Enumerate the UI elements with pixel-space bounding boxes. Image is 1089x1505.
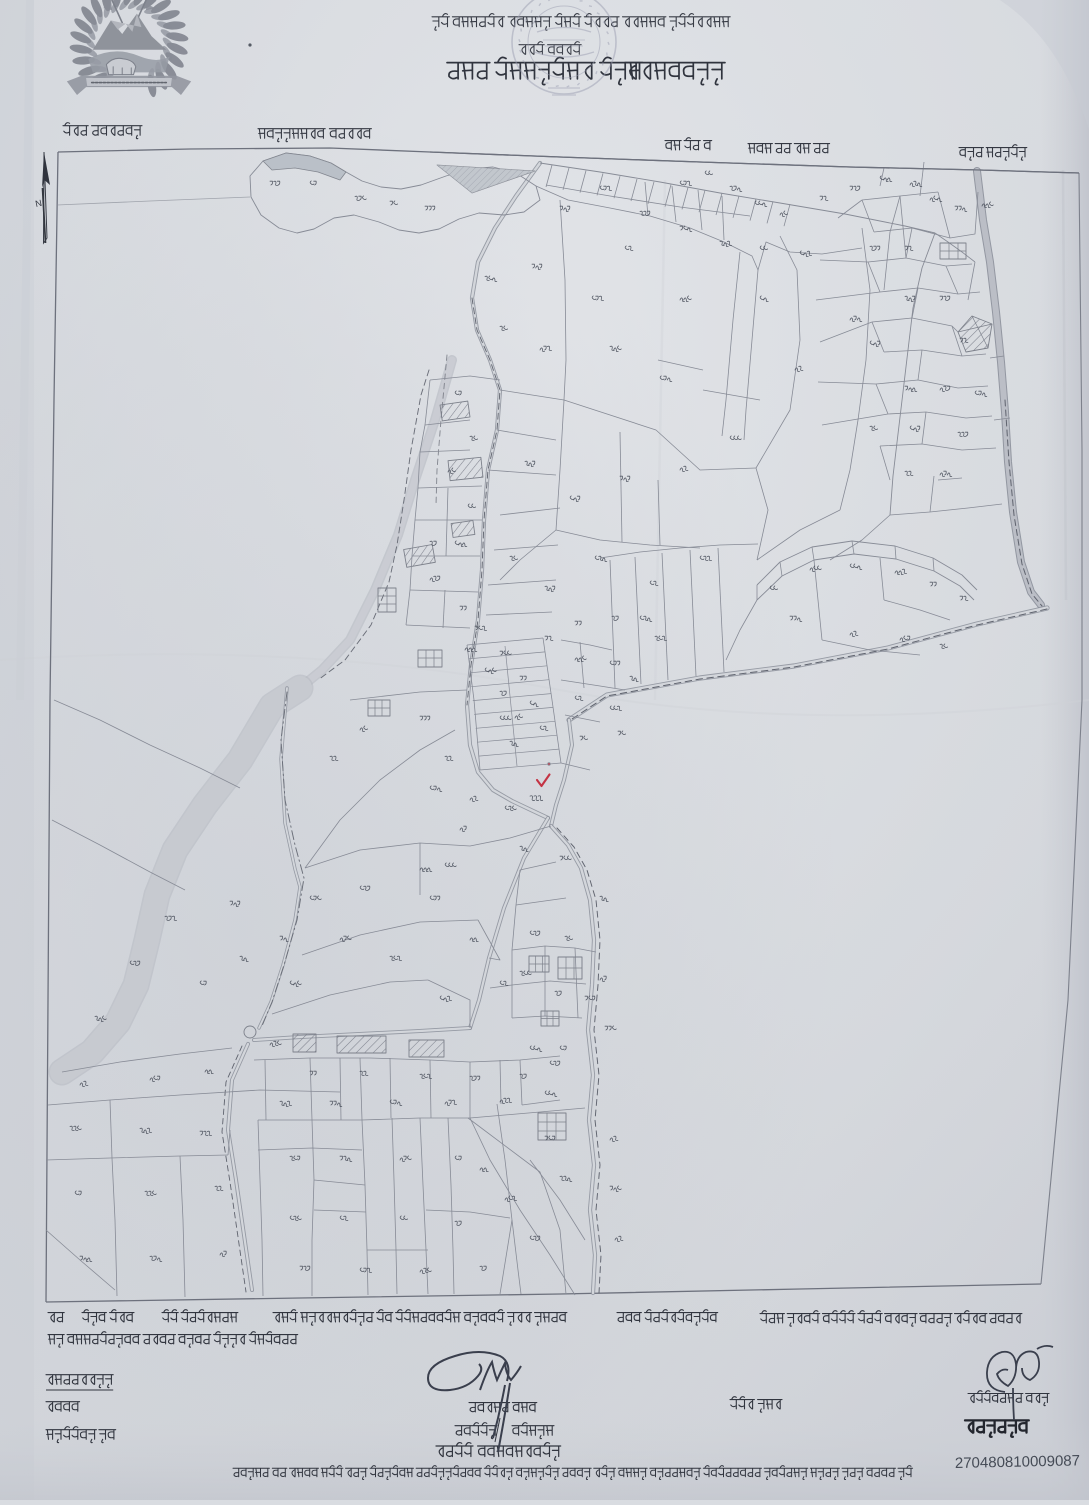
- svg-text:270480810009087: 270480810009087: [955, 1452, 1080, 1472]
